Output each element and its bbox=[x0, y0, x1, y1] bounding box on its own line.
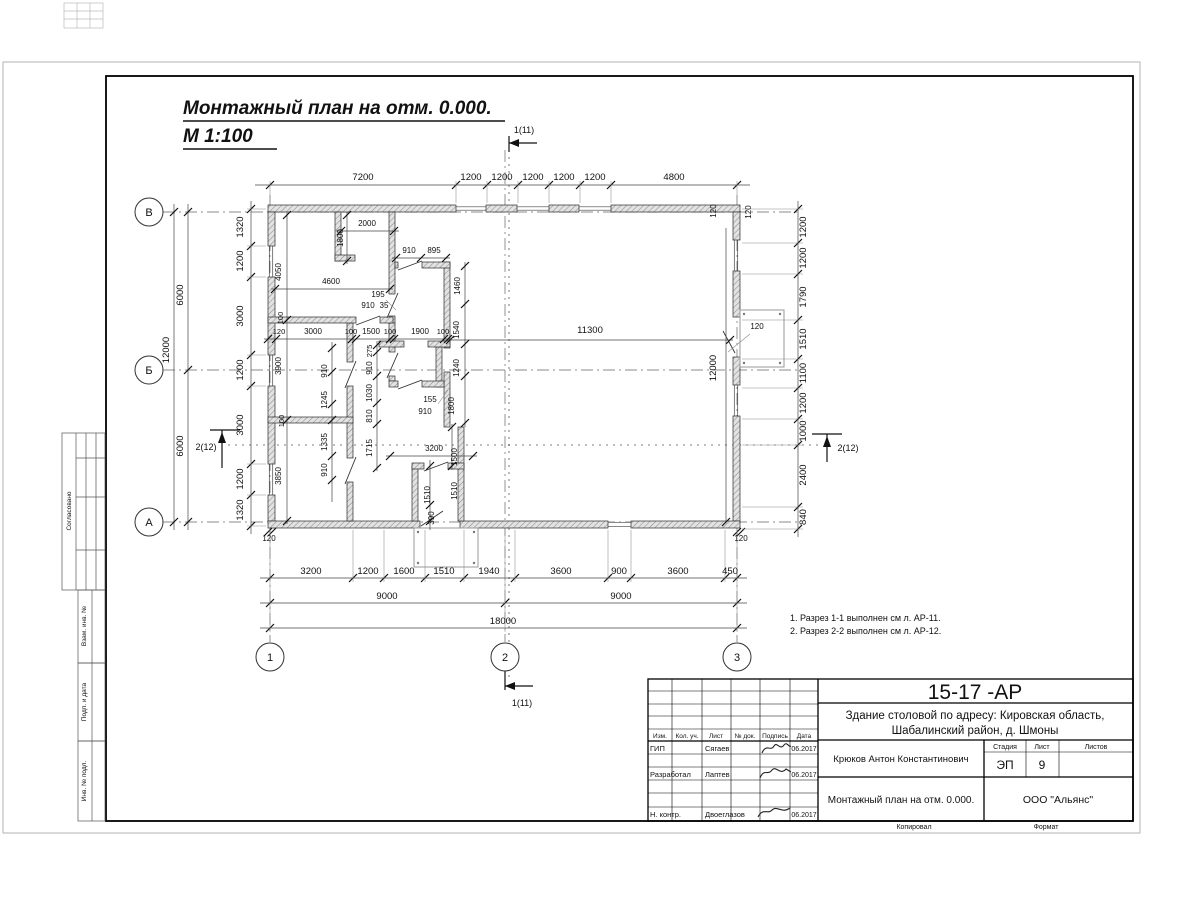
dim-label: 3850 bbox=[274, 467, 283, 485]
row-nkontr-name: Двоеглазов bbox=[705, 810, 745, 819]
company-name: ООО "Альянс" bbox=[1023, 794, 1093, 806]
sheets-label: Листов bbox=[1085, 744, 1108, 751]
stage-value: ЭП bbox=[996, 758, 1013, 772]
left-attribute-strips: Согласовано Взам. инв. № Подп. и дата Ин… bbox=[62, 433, 105, 821]
col-izm: Изм. bbox=[653, 733, 667, 740]
dim-label: 1200 bbox=[584, 172, 605, 183]
doc-number: 15-17 -АР bbox=[928, 681, 1023, 704]
dim-label: 1200 bbox=[798, 392, 809, 413]
dim-label: 1335 bbox=[320, 433, 329, 451]
door-opening-marks bbox=[345, 261, 735, 526]
dim-label: 390 bbox=[427, 511, 436, 525]
dim-label: 120 bbox=[709, 204, 718, 218]
dim-label: 3200 bbox=[425, 444, 443, 453]
dim-label: 1(11) bbox=[512, 698, 532, 708]
row-nkontr-role: Н. контр. bbox=[650, 810, 681, 819]
dim-label: 3600 bbox=[667, 566, 688, 577]
dim-label: 900 bbox=[611, 566, 627, 577]
axis-col-3: 3 bbox=[734, 652, 740, 664]
row-gip-role: ГИП bbox=[650, 744, 665, 753]
porches bbox=[414, 310, 784, 567]
dimension-layer: 7200120012001200120012004800120120320012… bbox=[161, 125, 859, 708]
dim-label: 155 bbox=[423, 395, 437, 404]
dim-label: 100 bbox=[277, 415, 286, 428]
title-block: 15-17 -АР Здание столовой по адресу: Кир… bbox=[648, 679, 1133, 821]
dim-label: 1510 bbox=[423, 486, 432, 504]
axis-row-a: А bbox=[145, 517, 153, 529]
dim-label: 1100 bbox=[798, 363, 809, 383]
note-1: 1. Разрез 1-1 выполнен см л. АР-11. bbox=[790, 613, 941, 623]
sheet-footer: Копировал Формат bbox=[896, 824, 1059, 831]
dim-label: 910 bbox=[365, 361, 374, 375]
dim-label: 1600 bbox=[393, 566, 414, 577]
dim-label: 3900 bbox=[274, 357, 283, 375]
dim-label: 1000 bbox=[798, 420, 809, 441]
drawing-title-line1: Монтажный план на отм. 0.000. bbox=[183, 98, 492, 119]
col-list: Лист bbox=[709, 733, 723, 740]
dim-label: 1200 bbox=[460, 172, 481, 183]
strip-label-inv-podl: Инв. № подл. bbox=[81, 761, 88, 802]
dim-label: 12000 bbox=[161, 337, 172, 363]
note-2: 2. Разрез 2-2 выполнен см л. АР-12. bbox=[790, 626, 941, 636]
dim-label: 100 bbox=[384, 327, 397, 336]
author-name: Крюков Антон Константинович bbox=[833, 754, 968, 765]
project-address-line2: Шабалинский район, д. Шмоны bbox=[892, 725, 1059, 737]
dim-label: 100 bbox=[276, 312, 285, 325]
dim-label: 35 bbox=[380, 301, 389, 310]
dim-label: 2400 bbox=[798, 464, 809, 485]
dim-label: 195 bbox=[371, 290, 385, 299]
dim-label: 1200 bbox=[235, 359, 246, 380]
col-data: Дата bbox=[797, 733, 812, 740]
dim-label: 4600 bbox=[322, 277, 340, 286]
dim-label: 840 bbox=[798, 509, 809, 525]
dim-label: 100 bbox=[345, 327, 358, 336]
row-gip-date: 06.2017 bbox=[791, 746, 816, 753]
dim-label: 1240 bbox=[452, 359, 461, 377]
blueprint-svg: Согласовано Взам. инв. № Подп. и дата Ин… bbox=[0, 0, 1200, 900]
notes: 1. Разрез 1-1 выполнен см л. АР-11. 2. Р… bbox=[790, 613, 941, 636]
dim-label: 1200 bbox=[235, 250, 246, 271]
dim-label: 3600 bbox=[550, 566, 571, 577]
dim-label: 6000 bbox=[175, 284, 186, 305]
col-podpis: Подпись bbox=[762, 733, 788, 740]
dim-label: 3000 bbox=[235, 305, 246, 326]
dim-label: 9000 bbox=[376, 591, 397, 602]
drawing-title: Монтажный план на отм. 0.000. М 1:100 bbox=[183, 98, 505, 149]
dim-label: 1800 bbox=[336, 229, 345, 247]
dim-label: 895 bbox=[427, 246, 441, 255]
dim-label: 910 bbox=[320, 463, 329, 477]
corner-stamp-grid bbox=[64, 3, 103, 28]
dim-label: 120 bbox=[262, 534, 276, 543]
row-nkontr-date: 06.2017 bbox=[791, 812, 816, 819]
dim-label: 1500 bbox=[362, 327, 380, 336]
axis-bubbles: В Б А 1 2 3 bbox=[135, 198, 751, 671]
signature-gip bbox=[762, 744, 791, 753]
dim-label: 3000 bbox=[235, 414, 246, 435]
dim-label: 12000 bbox=[708, 355, 719, 381]
dim-label: 18000 bbox=[490, 616, 516, 627]
strip-label-soglasovano: Согласовано bbox=[66, 491, 73, 530]
dim-label: 1200 bbox=[235, 468, 246, 489]
dim-label: 3200 bbox=[300, 566, 321, 577]
dim-label: 1(11) bbox=[514, 125, 534, 135]
dim-label: 120 bbox=[734, 534, 748, 543]
dim-label: 9000 bbox=[610, 591, 631, 602]
dim-label: 1200 bbox=[553, 172, 574, 183]
axis-col-1: 1 bbox=[267, 652, 273, 664]
axis-grid-lines bbox=[163, 150, 820, 680]
dim-label: 3000 bbox=[304, 327, 322, 336]
strip-label-podp-data: Подп. и дата bbox=[81, 682, 88, 721]
dim-label: 910 bbox=[402, 246, 416, 255]
row-gip-name: Сягаев bbox=[705, 744, 729, 753]
footer-format: Формат bbox=[1034, 824, 1060, 831]
dim-label: 2000 bbox=[358, 219, 376, 228]
strip-label-vzam-inv: Взам. инв. № bbox=[81, 606, 88, 646]
col-doc: № док. bbox=[735, 733, 756, 740]
col-kol-uch: Кол. уч. bbox=[675, 733, 698, 740]
dim-label: 7200 bbox=[352, 172, 373, 183]
sheet-number: 9 bbox=[1039, 758, 1046, 772]
dim-label: 1245 bbox=[320, 391, 329, 409]
dim-label: 1900 bbox=[411, 327, 429, 336]
dim-label: 1200 bbox=[798, 247, 809, 268]
dim-label: 910 bbox=[418, 407, 432, 416]
drawing-title-line2: М 1:100 bbox=[183, 126, 253, 147]
dim-label: 2(12) bbox=[837, 443, 858, 453]
dim-label: 120 bbox=[750, 322, 764, 331]
dim-label: 11300 bbox=[577, 325, 603, 336]
dim-label: 4050 bbox=[274, 263, 283, 281]
dim-label: 1460 bbox=[453, 277, 462, 295]
dim-label: 1940 bbox=[478, 566, 499, 577]
dim-label: 910 bbox=[320, 364, 329, 378]
dim-label: 1790 bbox=[798, 286, 809, 307]
row-razrabotal-date: 06.2017 bbox=[791, 772, 816, 779]
project-address-line1: Здание столовой по адресу: Кировская обл… bbox=[846, 710, 1105, 722]
drawing-sheet: Согласовано Взам. инв. № Подп. и дата Ин… bbox=[0, 0, 1200, 900]
dim-label: 1800 bbox=[447, 397, 456, 415]
dim-label: 1715 bbox=[365, 439, 374, 457]
dim-label: 1200 bbox=[798, 216, 809, 237]
axis-row-v: В bbox=[145, 207, 152, 219]
dim-label: 450 bbox=[722, 566, 738, 577]
dim-label: 1510 bbox=[798, 328, 809, 349]
dim-label: 4800 bbox=[663, 172, 684, 183]
drawing-name: Монтажный план на отм. 0.000. bbox=[828, 795, 974, 806]
dim-label: 910 bbox=[361, 301, 375, 310]
signature-razrabotal bbox=[760, 769, 791, 778]
dim-label: 1320 bbox=[235, 216, 246, 237]
dim-label: 1510 bbox=[450, 482, 459, 500]
row-razrabotal-name: Лаптев bbox=[705, 770, 730, 779]
dim-label: 1510 bbox=[433, 566, 454, 577]
dim-label: 1200 bbox=[357, 566, 378, 577]
dim-label: 6000 bbox=[175, 435, 186, 456]
axis-row-b: Б bbox=[145, 365, 152, 377]
dim-label: 1030 bbox=[365, 384, 374, 402]
dim-label: 1200 bbox=[491, 172, 512, 183]
dim-label: 1200 bbox=[522, 172, 543, 183]
axis-col-2: 2 bbox=[502, 652, 508, 664]
dim-label: 1540 bbox=[452, 321, 461, 339]
dim-label: 120 bbox=[273, 327, 286, 336]
dim-label: 275 bbox=[365, 345, 374, 358]
row-razrabotal-role: Разработал bbox=[650, 770, 691, 779]
footer-copied: Копировал bbox=[896, 824, 931, 831]
stage-label: Стадия bbox=[993, 744, 1017, 751]
signature-nkontr bbox=[758, 808, 790, 817]
corner-offset-ticks bbox=[264, 528, 745, 536]
dim-label: 120 bbox=[744, 205, 753, 219]
dim-label: 100 bbox=[437, 327, 450, 336]
dim-label: 1320 bbox=[235, 499, 246, 520]
dim-label: 1500 bbox=[450, 448, 459, 466]
dim-label: 2(12) bbox=[195, 442, 216, 452]
dim-label: 810 bbox=[365, 409, 374, 423]
sheet-label: Лист bbox=[1034, 744, 1050, 751]
